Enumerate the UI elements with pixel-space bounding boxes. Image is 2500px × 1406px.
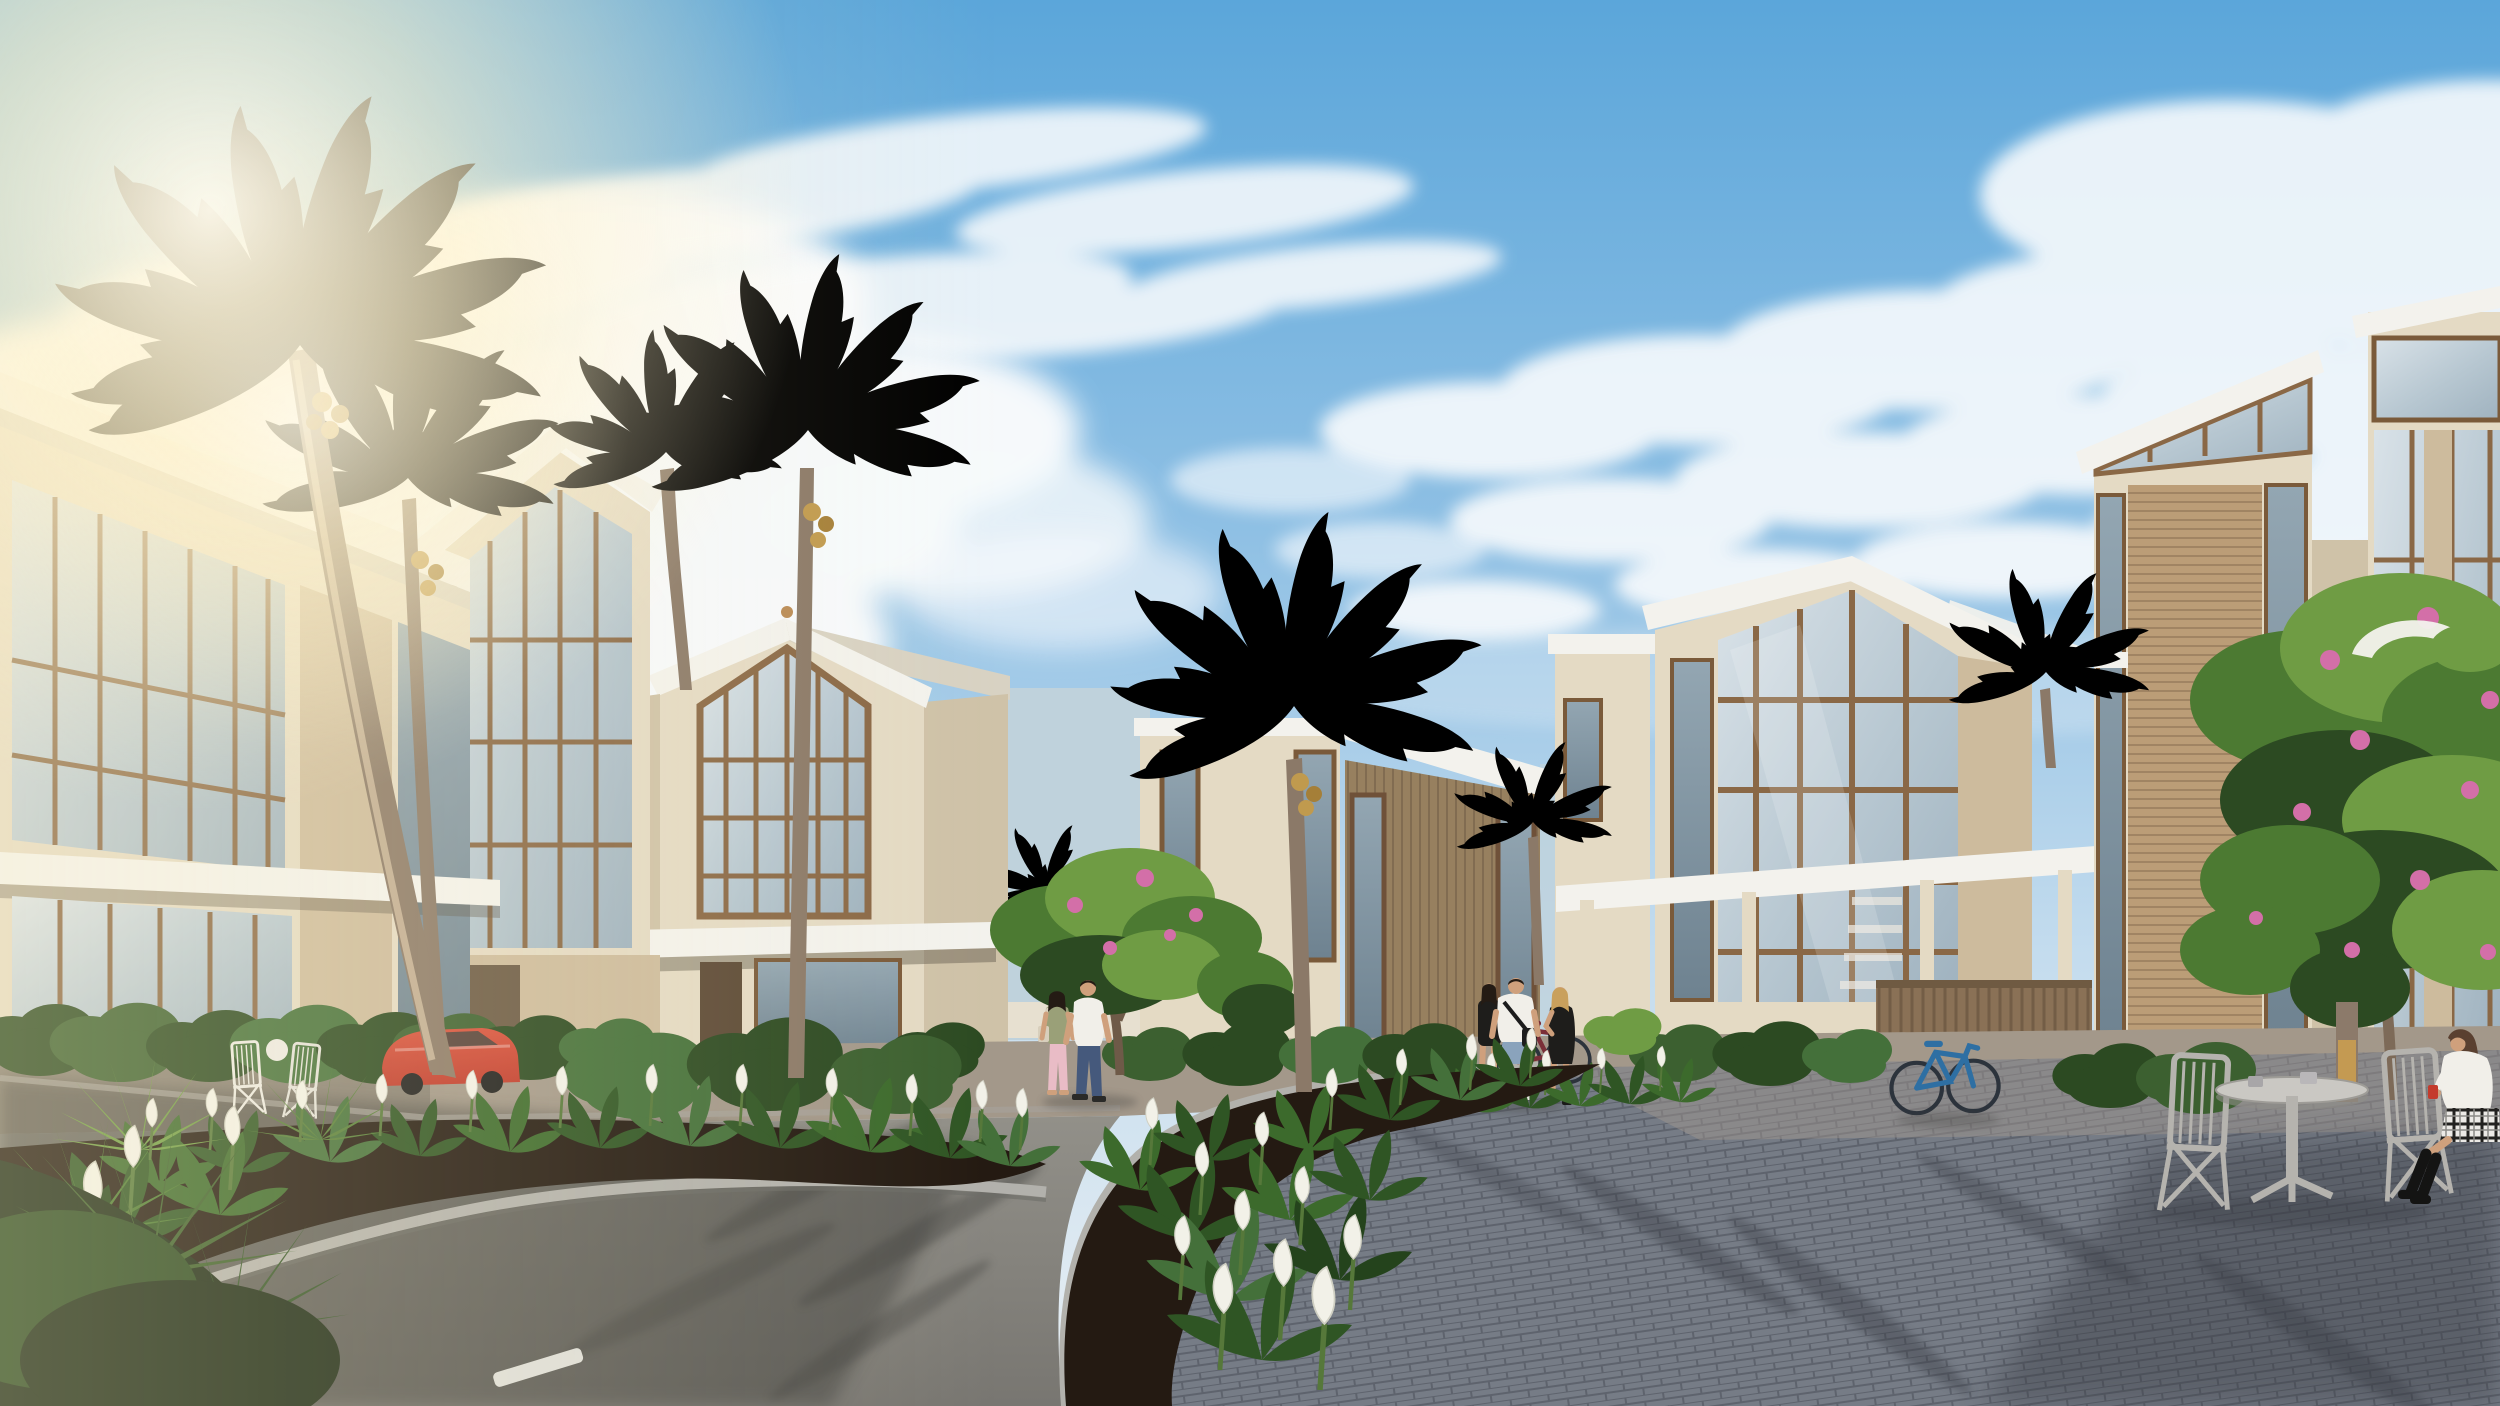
bike-shadow	[1896, 1112, 2000, 1128]
wing-roof	[1548, 634, 1658, 654]
left-glazing	[1672, 660, 1712, 1000]
sun-glare	[0, 0, 1000, 1406]
fence-rail	[1876, 980, 2092, 988]
warm-haze	[0, 0, 1000, 1406]
architectural-render	[0, 0, 2500, 1406]
red-drink	[2428, 1085, 2438, 1099]
tower-window	[1352, 795, 1384, 1048]
cup	[2248, 1076, 2263, 1087]
couple-shadow	[1042, 1094, 1138, 1110]
cup	[2300, 1072, 2317, 1084]
villa-community-render	[0, 0, 2500, 1406]
towerB-clerestory	[2374, 338, 2500, 420]
towerA-window	[2098, 495, 2124, 1050]
